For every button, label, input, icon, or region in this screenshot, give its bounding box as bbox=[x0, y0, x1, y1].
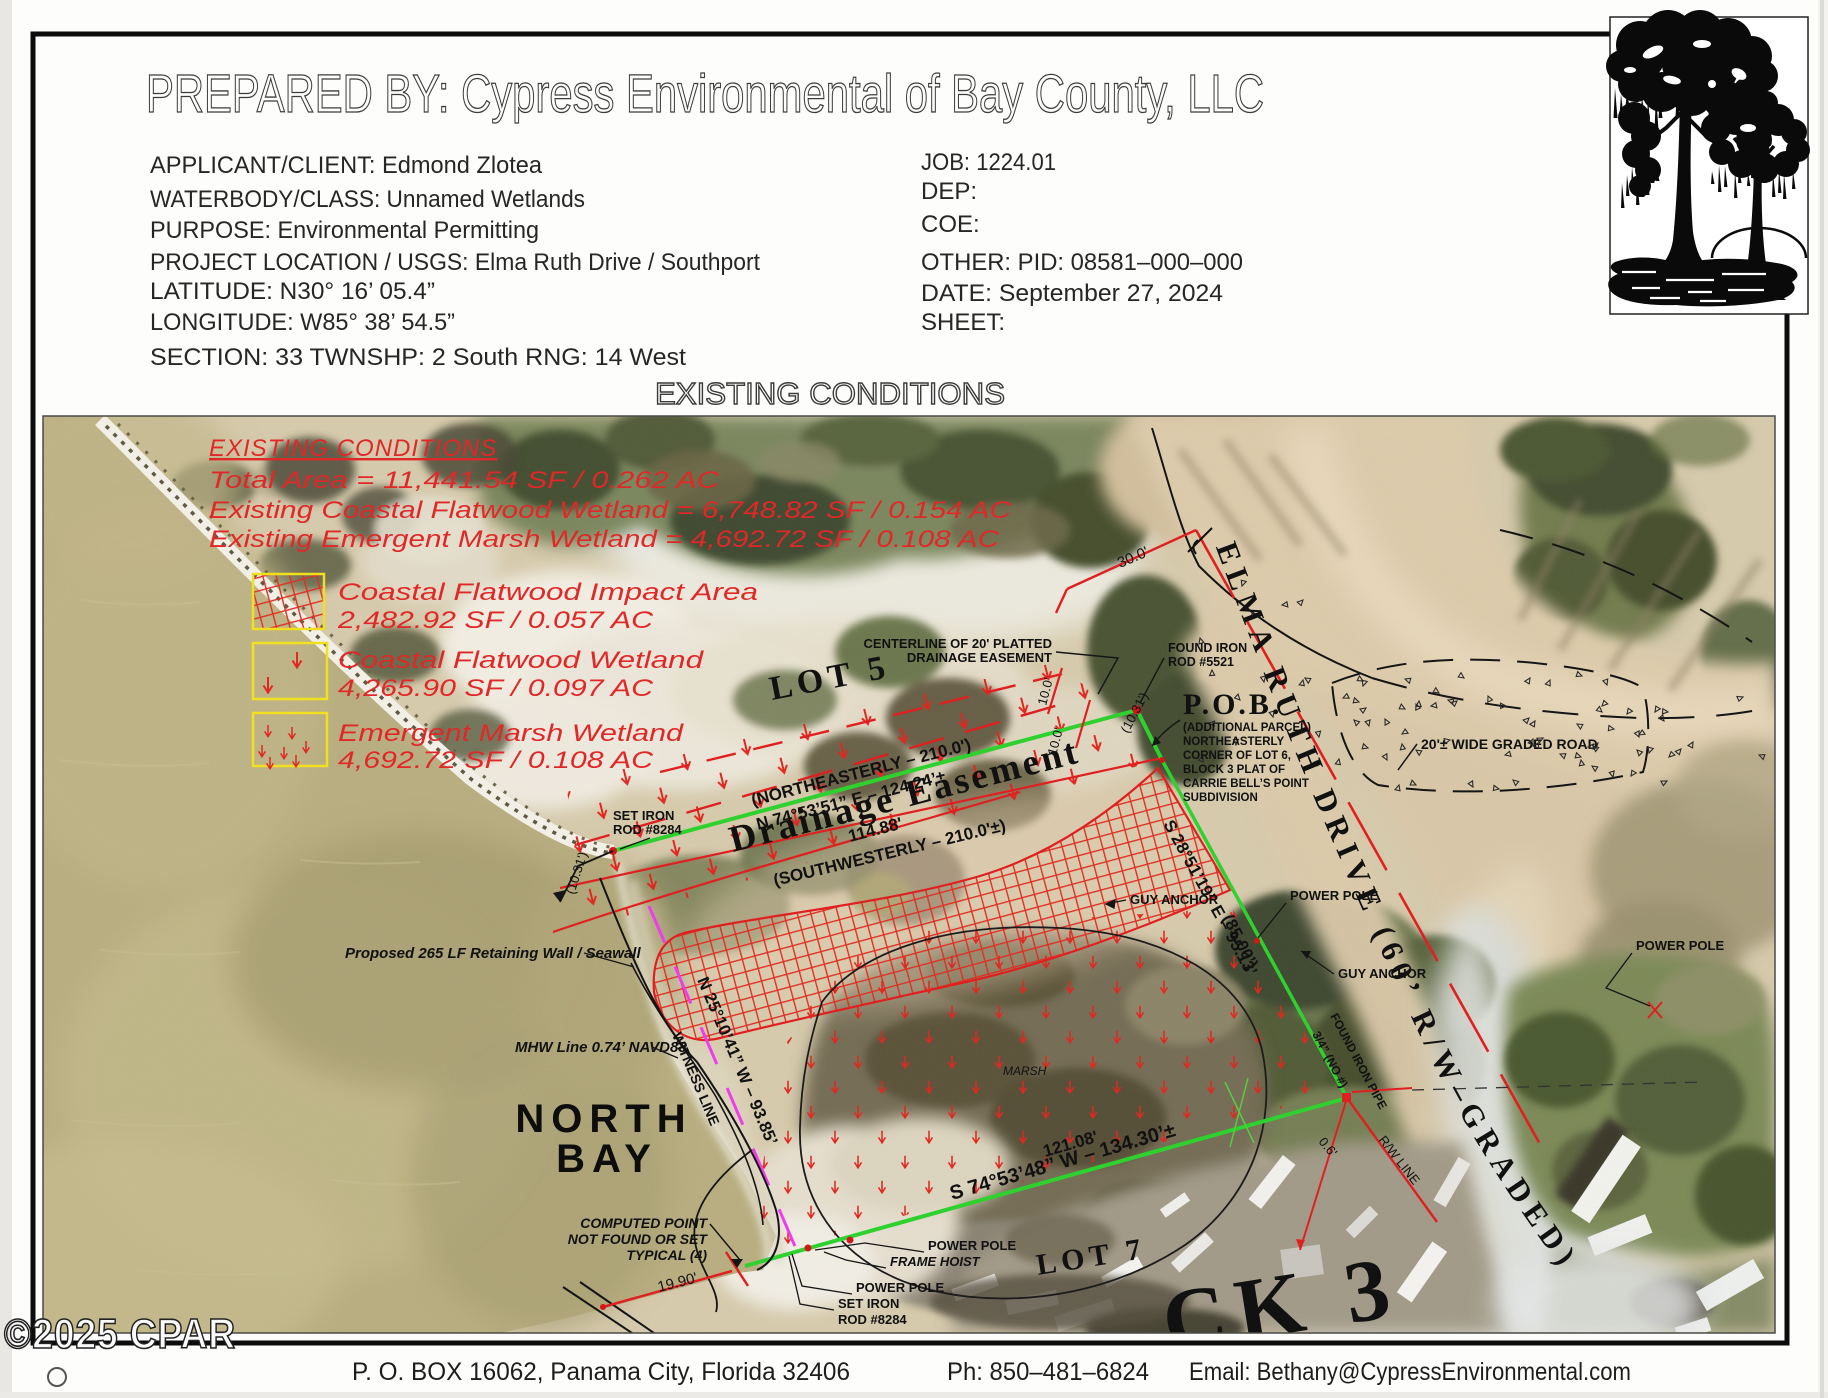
svg-text:Email: Bethany@CypressEnviron: Email: Bethany@CypressEnvironmental.com bbox=[1189, 1358, 1631, 1386]
svg-text:POWER POLE: POWER POLE bbox=[928, 1238, 1016, 1253]
svg-text:POWER POLE: POWER POLE bbox=[856, 1280, 944, 1295]
svg-text:ROD #8284: ROD #8284 bbox=[613, 822, 682, 837]
svg-text:MHW Line 0.74’ NAVD88: MHW Line 0.74’ NAVD88 bbox=[515, 1039, 687, 1056]
svg-text:4,265.90 SF / 0.097 AC: 4,265.90 SF / 0.097 AC bbox=[338, 675, 654, 702]
svg-text:(ADDITIONAL PARCEL): (ADDITIONAL PARCEL) bbox=[1183, 722, 1311, 734]
svg-text:TYPICAL (4): TYPICAL (4) bbox=[626, 1247, 707, 1263]
svg-text:Existing Emergent Marsh Wet: Existing Emergent Marsh Wetland = 4,692.… bbox=[209, 526, 1000, 553]
svg-text:LONGITUDE: W85° 38’ 54.5”: LONGITUDE: W85° 38’ 54.5” bbox=[150, 309, 455, 336]
svg-text:P.O.B.: P.O.B. bbox=[1183, 688, 1282, 721]
svg-text:DEP:: DEP: bbox=[921, 178, 977, 205]
svg-text:BLOCK 3 PLAT OF: BLOCK 3 PLAT OF bbox=[1183, 764, 1285, 776]
svg-text:Emergent Marsh Wetland: Emergent Marsh Wetland bbox=[338, 720, 684, 747]
svg-text:DATE: September 27, 2024: DATE: September 27, 2024 bbox=[921, 280, 1223, 307]
svg-text:Existing Coastal Flatwood W: Existing Coastal Flatwood Wetland = 6,74… bbox=[209, 497, 1012, 524]
svg-text:PREPARED BY: Cypress Environ: PREPARED BY: Cypress Environmental of Ba… bbox=[146, 64, 1264, 124]
svg-text:Coastal Flatwood Wetland: Coastal Flatwood Wetland bbox=[338, 647, 704, 674]
svg-text:OTHER: PID: 08581–000–000: OTHER: PID: 08581–000–000 bbox=[921, 249, 1243, 276]
svg-text:EXISTING CONDITIONS: EXISTING CONDITIONS bbox=[209, 435, 497, 462]
svg-text:MARSH: MARSH bbox=[1003, 1064, 1047, 1078]
svg-text:FOUND IRON: FOUND IRON bbox=[1168, 641, 1247, 655]
svg-text:GUY ANCHOR: GUY ANCHOR bbox=[1338, 966, 1427, 981]
svg-text:4,692.72 SF / 0.108 AC: 4,692.72 SF / 0.108 AC bbox=[338, 747, 654, 774]
svg-text:JOB: 1224.01: JOB: 1224.01 bbox=[921, 149, 1056, 176]
svg-text:POWER POLE: POWER POLE bbox=[1636, 938, 1724, 953]
svg-text:LATITUDE: N30° 16’ 05.4”: LATITUDE: N30° 16’ 05.4” bbox=[150, 278, 435, 305]
svg-text:SET IRON: SET IRON bbox=[838, 1296, 899, 1311]
svg-text:EXISTING CONDITIONS: EXISTING CONDITIONS bbox=[655, 376, 1005, 411]
svg-text:CARRIE BELL’S POINT: CARRIE BELL’S POINT bbox=[1183, 778, 1309, 790]
svg-text:APPLICANT/CLIENT: Edmond Zlo: APPLICANT/CLIENT: Edmond Zlotea bbox=[150, 152, 543, 179]
svg-text:WATERBODY/CLASS: Unnamed Wetl: WATERBODY/CLASS: Unnamed Wetlands bbox=[150, 186, 585, 213]
svg-text:Ph: 850–481–6824: Ph: 850–481–6824 bbox=[947, 1358, 1149, 1386]
svg-text:20'± WIDE GRADED ROAD: 20'± WIDE GRADED ROAD bbox=[1421, 736, 1598, 752]
svg-text:P. O. BOX 16062, Panama C: P. O. BOX 16062, Panama City, Florida 32… bbox=[352, 1358, 850, 1386]
svg-text:SECTION: 33 TWNSHP: 2 Sout: SECTION: 33 TWNSHP: 2 South RNG: 14 West bbox=[150, 344, 686, 371]
svg-text:ROD #8284: ROD #8284 bbox=[838, 1312, 907, 1327]
svg-text:©2025 CPAR: ©2025 CPAR bbox=[4, 1310, 236, 1357]
svg-text:ROD #5521: ROD #5521 bbox=[1168, 655, 1234, 669]
svg-text:DRAINAGE EASEMENT: DRAINAGE EASEMENT bbox=[907, 650, 1052, 665]
svg-text:BAY: BAY bbox=[556, 1137, 658, 1181]
svg-text:PROJECT LOCATION / USGS: E: PROJECT LOCATION / USGS: Elma Ruth Drive… bbox=[150, 249, 760, 276]
svg-text:NORTH: NORTH bbox=[515, 1097, 692, 1141]
svg-text:Total Area = 11,441.54 SF: Total Area = 11,441.54 SF / 0.262 AC bbox=[209, 467, 720, 494]
svg-text:Coastal Flatwood Impact Are: Coastal Flatwood Impact Area bbox=[338, 579, 758, 606]
svg-text:PURPOSE: Environmental Permit: PURPOSE: Environmental Permitting bbox=[150, 217, 539, 244]
svg-text:CENTERLINE OF 20' PLATTED: CENTERLINE OF 20' PLATTED bbox=[864, 636, 1052, 651]
svg-text:CORNER OF LOT 6,: CORNER OF LOT 6, bbox=[1183, 750, 1291, 762]
svg-text:POWER POLE: POWER POLE bbox=[1290, 888, 1378, 903]
svg-text:SHEET:: SHEET: bbox=[921, 309, 1005, 336]
svg-text:GUY ANCHOR: GUY ANCHOR bbox=[1130, 892, 1219, 907]
svg-text:2,482.92 SF / 0.057 AC: 2,482.92 SF / 0.057 AC bbox=[337, 607, 654, 634]
svg-text:NOT FOUND OR SET: NOT FOUND OR SET bbox=[568, 1231, 709, 1247]
svg-text:FRAME HOIST: FRAME HOIST bbox=[890, 1254, 981, 1269]
svg-text:COE:: COE: bbox=[921, 211, 980, 238]
svg-text:NORTHEASTERLY: NORTHEASTERLY bbox=[1183, 736, 1284, 748]
svg-text:SUBDIVISION: SUBDIVISION bbox=[1183, 792, 1258, 804]
svg-text:Proposed 265 LF Retaining: Proposed 265 LF Retaining Wall / Seawall bbox=[345, 945, 641, 962]
svg-text:COMPUTED POINT: COMPUTED POINT bbox=[580, 1215, 708, 1231]
svg-text:SET IRON: SET IRON bbox=[613, 808, 674, 823]
